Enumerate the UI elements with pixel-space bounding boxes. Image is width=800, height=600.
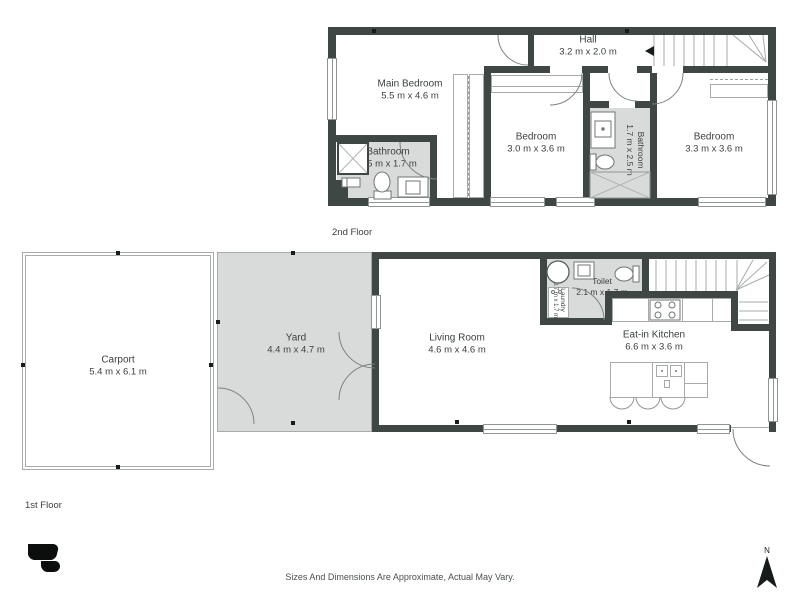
disclaimer-text: Sizes And Dimensions Are Approximate, Ac…	[0, 572, 800, 582]
window	[556, 197, 595, 207]
room-label-carport: Carport 5.4 m x 6.1 m	[89, 353, 147, 378]
room-name: Bedroom	[685, 130, 743, 143]
wall	[637, 66, 652, 73]
floor-plan-canvas: Hall 3.2 m x 2.0 m Main Bedroom 5.5 m x …	[0, 0, 800, 600]
room-name: Eat-in Kitchen	[623, 328, 685, 341]
room-dims: 3.3 m x 3.6 m	[685, 143, 743, 155]
wall	[430, 135, 437, 206]
window	[371, 295, 381, 329]
closet-shelf	[491, 75, 583, 93]
wall	[484, 66, 491, 206]
window	[767, 100, 777, 195]
island-sink	[670, 365, 682, 377]
counter-line	[682, 299, 683, 321]
room-name: Yard	[267, 331, 325, 344]
wall	[335, 135, 437, 142]
wardrobe-door	[469, 74, 484, 198]
room-name: Toilet	[576, 276, 628, 287]
window	[697, 424, 730, 434]
dimension-tick	[116, 251, 120, 255]
wall	[540, 259, 547, 325]
room-dims: 2.5 m x 1.7 m	[359, 158, 417, 170]
window	[368, 197, 430, 207]
wall	[605, 298, 612, 325]
wall	[372, 252, 379, 432]
room-label-kitchen: Eat-in Kitchen 6.6 m x 3.6 m	[623, 328, 685, 353]
wall	[540, 318, 612, 325]
wardrobe-rail	[710, 79, 768, 80]
dimension-tick	[627, 420, 631, 424]
dimension-tick	[21, 363, 25, 367]
first-floor-label: 1st Floor	[25, 500, 62, 511]
room-name: Laundry	[558, 282, 566, 318]
island-line	[652, 363, 653, 397]
dimension-tick	[625, 29, 629, 33]
wall	[731, 324, 771, 331]
wall	[583, 73, 590, 206]
dimension-tick	[291, 251, 295, 255]
room-dims: 6.6 m x 3.6 m	[623, 341, 685, 353]
island-line	[684, 363, 685, 397]
room-label-toilet: Toilet 2.1 m x 1.7 m	[576, 276, 628, 298]
window	[483, 424, 557, 434]
room-toilet	[572, 298, 605, 319]
room-dims: 4.6 m x 4.6 m	[428, 344, 486, 356]
wall	[528, 33, 534, 67]
counter-line	[712, 299, 713, 321]
wall	[683, 66, 770, 73]
brand-logo-icon	[28, 544, 60, 572]
wall	[650, 73, 657, 206]
north-label: N	[764, 546, 770, 555]
wardrobe-door	[453, 74, 468, 198]
dimension-tick	[209, 363, 213, 367]
closet-shelf	[710, 84, 768, 98]
room-label-bathroom-left: Bathroom 2.5 m x 1.7 m	[359, 145, 417, 170]
room-label-bedroom-center: Bedroom 3.0 m x 3.6 m	[507, 130, 565, 155]
closet-rail	[492, 86, 582, 87]
room-name: Hall	[559, 33, 617, 46]
room-name: Bedroom	[507, 130, 565, 143]
wall	[328, 180, 348, 206]
window	[327, 58, 337, 120]
wardrobe-track	[468, 76, 469, 196]
dimension-tick	[116, 465, 120, 469]
wall	[372, 252, 776, 259]
hwc-label: HWC	[552, 269, 564, 275]
entry-door-threshold	[731, 427, 769, 428]
island-sink	[656, 365, 668, 377]
room-label-laundry: Laundry 0.7 m x 1.7 m	[550, 282, 566, 318]
dimension-tick	[455, 420, 459, 424]
room-name: Carport	[89, 353, 147, 366]
room-dims: 4.4 m x 4.7 m	[267, 344, 325, 356]
dimension-tick	[291, 421, 295, 425]
second-floor-label: 2nd Floor	[332, 227, 372, 238]
wall	[582, 66, 608, 73]
island-faucet	[664, 380, 670, 388]
room-name: Living Room	[428, 331, 486, 344]
window	[698, 197, 766, 207]
dimension-tick	[216, 320, 220, 324]
room-dims: 5.4 m x 6.1 m	[89, 366, 147, 378]
dimension-tick	[372, 29, 376, 33]
room-name: Main Bedroom	[377, 77, 442, 90]
counter-line	[648, 299, 649, 321]
room-dims: 3.0 m x 3.6 m	[507, 143, 565, 155]
wall	[328, 27, 776, 35]
window	[490, 197, 545, 207]
room-dims: 1.7 m x 2.5 m	[624, 124, 635, 176]
room-dims: 0.7 m x 1.7 m	[550, 282, 558, 318]
door-opening	[609, 101, 635, 108]
kitchen-counter	[612, 298, 737, 322]
room-dims: 3.2 m x 2.0 m	[559, 46, 617, 58]
room-name: Bathroom	[635, 124, 646, 176]
room-label-hall: Hall 3.2 m x 2.0 m	[559, 33, 617, 58]
window	[768, 378, 778, 422]
room-name: Bathroom	[359, 145, 417, 158]
room-dims: 5.5 m x 4.6 m	[377, 90, 442, 102]
island-line	[684, 383, 707, 384]
wall	[484, 66, 550, 73]
room-label-living-room: Living Room 4.6 m x 4.6 m	[428, 331, 486, 356]
room-label-main-bedroom: Main Bedroom 5.5 m x 4.6 m	[377, 77, 442, 102]
room-label-bedroom-right: Bedroom 3.3 m x 3.6 m	[685, 130, 743, 155]
room-label-bathroom-center: Bathroom 1.7 m x 2.5 m	[624, 124, 646, 176]
room-label-yard: Yard 4.4 m x 4.7 m	[267, 331, 325, 356]
room-dims: 2.1 m x 1.7 m	[576, 287, 628, 298]
